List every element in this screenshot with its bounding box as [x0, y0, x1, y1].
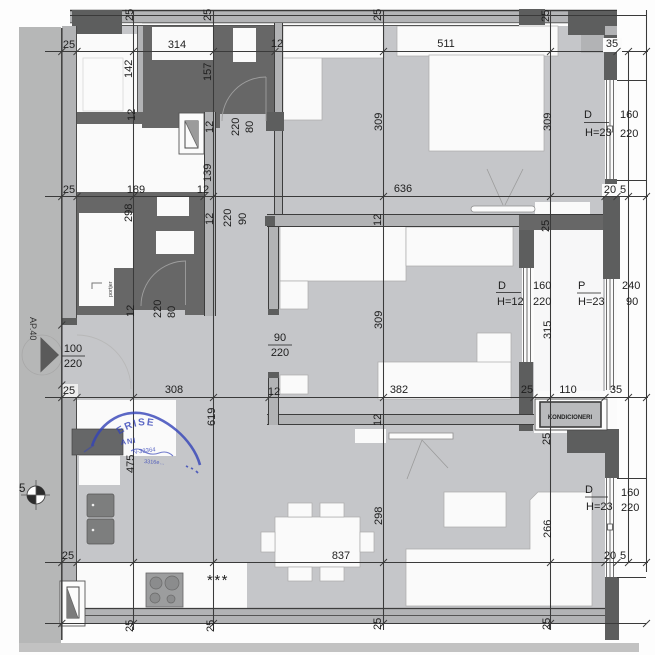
svg-text:20: 20: [604, 184, 616, 196]
svg-text:220: 220: [230, 118, 242, 136]
svg-text:189: 189: [127, 184, 145, 196]
svg-text:511: 511: [437, 38, 455, 50]
svg-text:25: 25: [63, 184, 75, 196]
svg-text:D: D: [585, 484, 593, 496]
svg-text:25: 25: [540, 220, 552, 232]
svg-text:100: 100: [64, 343, 82, 355]
svg-text:12: 12: [204, 213, 216, 225]
svg-text:382: 382: [390, 384, 408, 396]
svg-text:12: 12: [271, 38, 283, 50]
svg-text:220: 220: [222, 209, 234, 227]
svg-text:20: 20: [604, 550, 616, 562]
svg-text:619: 619: [206, 408, 218, 426]
svg-text:315: 315: [542, 321, 554, 339]
svg-text:12: 12: [372, 214, 384, 226]
svg-text:25: 25: [124, 9, 136, 21]
svg-text:139: 139: [202, 164, 214, 182]
svg-text:90: 90: [237, 213, 249, 225]
svg-text:5: 5: [19, 483, 25, 495]
svg-text:D: D: [584, 109, 592, 121]
svg-text:475: 475: [125, 455, 137, 473]
svg-text:80: 80: [166, 306, 178, 318]
svg-text:308: 308: [165, 384, 183, 396]
svg-text:220: 220: [64, 358, 82, 370]
svg-text:636: 636: [394, 183, 412, 195]
svg-text:90: 90: [626, 296, 638, 308]
svg-text:309: 309: [373, 311, 385, 329]
svg-text:25: 25: [372, 618, 384, 630]
svg-text:12: 12: [126, 109, 138, 121]
svg-text:309: 309: [373, 113, 385, 131]
svg-text:25: 25: [540, 10, 552, 22]
svg-text:12: 12: [197, 184, 209, 196]
svg-text:25: 25: [372, 9, 384, 21]
svg-text:25: 25: [63, 39, 75, 51]
svg-text:12: 12: [268, 386, 280, 398]
svg-text:298: 298: [123, 204, 135, 222]
svg-text:160: 160: [620, 109, 638, 121]
svg-text:25: 25: [202, 9, 214, 21]
svg-text:25: 25: [541, 433, 553, 445]
svg-text:110: 110: [559, 384, 577, 396]
svg-text:AP.40: AP.40: [28, 317, 38, 340]
svg-text:220: 220: [533, 296, 551, 308]
svg-text:220: 220: [271, 347, 289, 359]
svg-text:KONDICIONERI: KONDICIONERI: [548, 415, 593, 421]
svg-text:H=23: H=23: [578, 296, 605, 308]
svg-text:H=12: H=12: [497, 296, 524, 308]
svg-text:309: 309: [542, 113, 554, 131]
svg-text:12: 12: [372, 414, 384, 426]
svg-text:portjer: portjer: [108, 281, 114, 297]
svg-text:220: 220: [152, 300, 164, 318]
svg-text:142: 142: [123, 60, 135, 78]
svg-text:H=23: H=23: [586, 501, 613, 513]
svg-text:5: 5: [620, 184, 626, 196]
svg-text:160: 160: [621, 487, 639, 499]
svg-text:90: 90: [274, 332, 286, 344]
svg-text:5: 5: [620, 550, 626, 562]
svg-text:H=23: H=23: [585, 127, 612, 139]
svg-text:157: 157: [202, 63, 214, 81]
svg-text:***: ***: [207, 572, 229, 589]
svg-text:35: 35: [606, 38, 618, 50]
svg-text:25: 25: [521, 384, 533, 396]
svg-text:P: P: [578, 280, 585, 292]
svg-text:25: 25: [205, 620, 217, 632]
svg-text:160: 160: [533, 280, 551, 292]
svg-text:220: 220: [620, 128, 638, 140]
svg-text:80: 80: [244, 121, 256, 133]
svg-text:314: 314: [168, 39, 186, 51]
svg-text:266: 266: [542, 520, 554, 538]
svg-text:25: 25: [541, 618, 553, 630]
svg-text:240: 240: [622, 280, 640, 292]
svg-text:220: 220: [621, 502, 639, 514]
svg-text:D: D: [498, 280, 506, 292]
svg-text:837: 837: [332, 550, 350, 562]
svg-text:12: 12: [125, 305, 137, 317]
svg-text:25: 25: [62, 550, 74, 562]
svg-text:298: 298: [373, 507, 385, 525]
svg-text:35: 35: [610, 384, 622, 396]
svg-text:25: 25: [124, 620, 136, 632]
svg-text:25: 25: [63, 385, 75, 397]
svg-text:12: 12: [204, 121, 216, 133]
